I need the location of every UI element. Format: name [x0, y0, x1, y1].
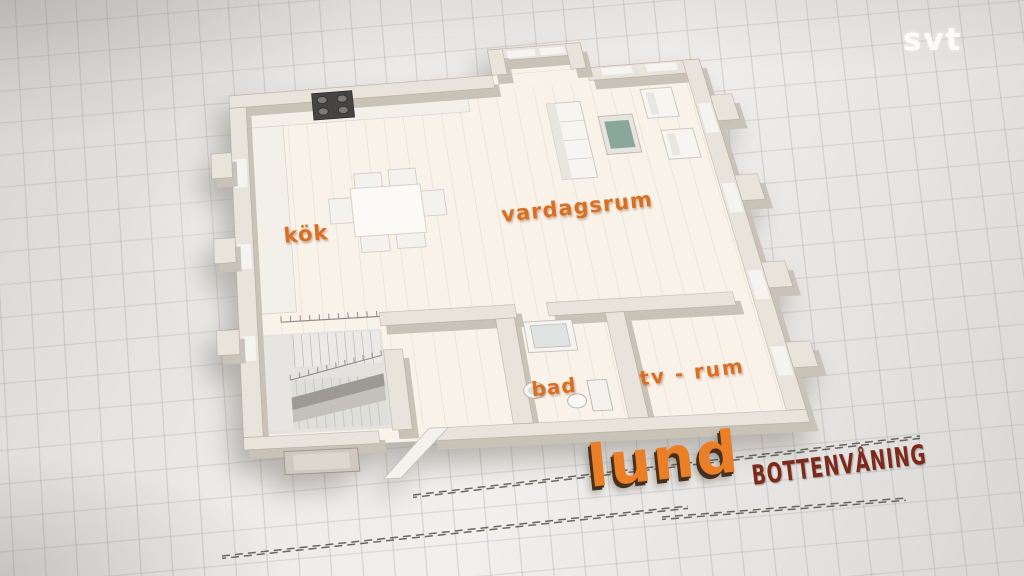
sketch-line-subtitle	[662, 500, 906, 519]
room-label-bad: bad	[530, 373, 577, 402]
sketch-line-bottom	[222, 508, 688, 558]
sketch-underlines	[0, 0, 1024, 576]
svt-logo: svt	[903, 22, 962, 58]
location-title: lund	[585, 422, 742, 496]
tv-frame: kök vardagsrum bad tv - rum lund BOTTENV…	[0, 0, 1024, 576]
sketch-line-subtitle	[662, 498, 906, 517]
room-label-kok: kök	[283, 220, 330, 248]
sketch-line-bottom	[222, 506, 688, 556]
